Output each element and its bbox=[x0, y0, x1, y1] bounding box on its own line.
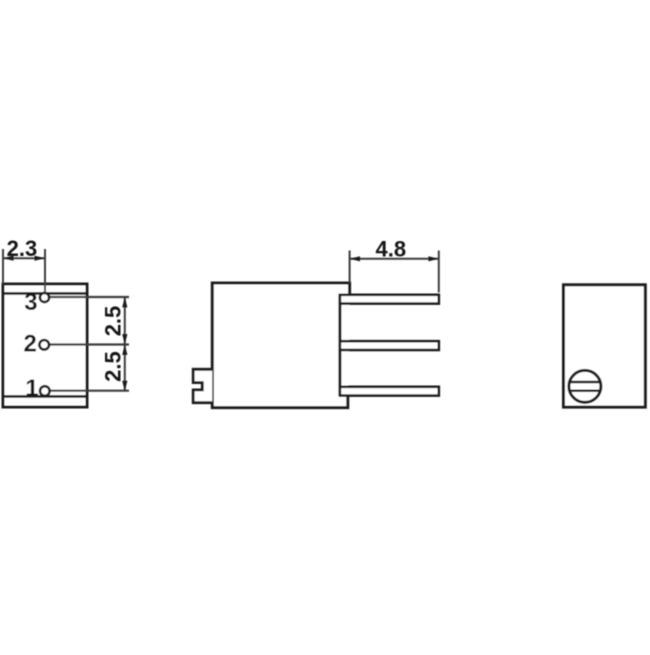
svg-text:2.5: 2.5 bbox=[100, 351, 125, 382]
svg-text:3: 3 bbox=[24, 289, 37, 316]
svg-text:1: 1 bbox=[25, 375, 38, 402]
svg-text:2.3: 2.3 bbox=[7, 236, 38, 261]
svg-text:4.8: 4.8 bbox=[376, 236, 407, 261]
svg-text:2.5: 2.5 bbox=[100, 306, 125, 337]
svg-text:2: 2 bbox=[24, 331, 37, 358]
